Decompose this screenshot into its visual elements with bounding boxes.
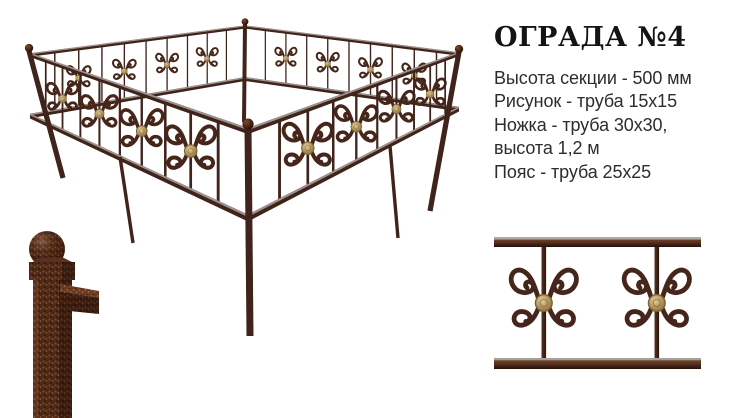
spec-leg-tube: Ножка - труба 30x30, [494,114,744,137]
fence-rail-highlight [245,25,459,53]
product-info: ОГРАДА №4 Высота секции - 500 мм Рисунок… [494,24,744,184]
fence-post [244,24,245,122]
spec-belt-tube: Пояс - труба 25x25 [494,161,744,184]
spec-list: Высота секции - 500 мм Рисунок - труба 1… [494,67,744,184]
spec-pattern-tube: Рисунок - труба 15x15 [494,90,744,113]
post-ball-finial [455,45,463,53]
post-ball-finial [25,44,33,52]
fence-leg [120,157,133,243]
spec-section-height: Высота секции - 500 мм [494,67,744,90]
section-bottom-rail-highlight [494,358,701,360]
post-close-up [29,231,99,418]
page-title: ОГРАДА №4 [494,24,744,51]
section-close-up [494,237,701,369]
product-card: ОГРАДА №4 Высота секции - 500 мм Рисунок… [0,0,749,418]
fence-leg [390,146,398,238]
post-ball-finial [242,18,249,25]
section-detail-image [488,230,710,376]
post-body-light-edge [33,280,39,418]
section-top-rail-highlight [494,237,701,240]
spec-leg-height: высота 1,2 м [494,137,744,160]
post-cap-side-shade [62,262,75,280]
fence-post [248,128,250,336]
post-detail-image [0,222,120,418]
post-ball-finial [242,118,253,129]
